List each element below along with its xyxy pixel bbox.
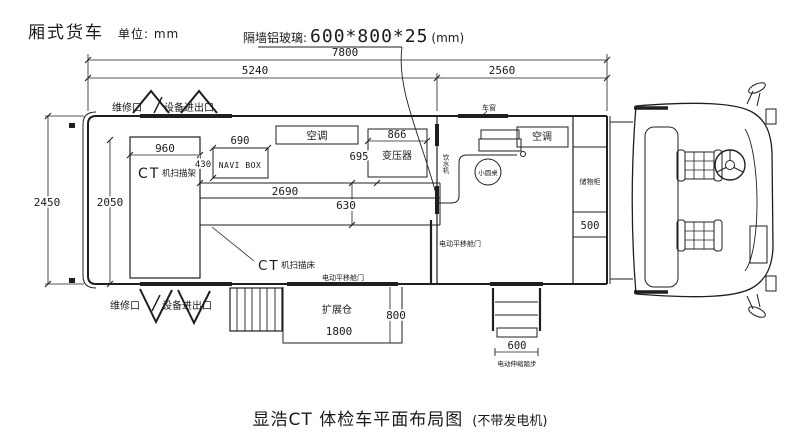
dim-cabin-length: 5240	[242, 64, 269, 77]
dim-cabinet-width: 500	[581, 220, 600, 232]
cab-front-box	[750, 226, 767, 263]
dim-expansion-depth: 800	[386, 309, 406, 322]
storage-column: 储物柜 500	[573, 116, 607, 284]
ac-right-label: 空调	[532, 130, 552, 143]
retractable-steps: 600 电动伸缩踏步	[493, 288, 540, 368]
service-port-label-bottom: 维修口	[110, 299, 140, 312]
truck-cab	[610, 81, 776, 320]
drawing-title-text: 显浩CT 体检车平面布局图	[253, 410, 464, 430]
service-openings-bottom: 维修口 设备进出口	[110, 289, 212, 323]
air-conditioner-left: 空调	[276, 126, 358, 144]
dim-expansion-length: 1800	[326, 325, 353, 338]
ct-gantry-ct: CT	[138, 166, 160, 182]
ct-bed-ct: CT	[258, 258, 280, 274]
left-dimensions: 2450 2050	[34, 113, 124, 287]
rear-hinge-bottom	[69, 278, 75, 283]
dim-total-length: 7800	[332, 46, 359, 59]
ct-gantry-label: 机扫描架	[162, 168, 197, 179]
mirror-bottom-icon	[747, 294, 767, 319]
passenger-seat-icon	[677, 220, 722, 251]
partition-wall: 电动平移舱门	[431, 116, 481, 284]
sliding-door-label-partition: 电动平移舱门	[439, 239, 481, 248]
sliding-door-label-bottom: 电动平移舱门	[322, 273, 364, 282]
water-dispenser-label: 饮水机	[441, 153, 449, 175]
headlight-top	[766, 109, 776, 124]
dim-interior-height: 2050	[97, 196, 124, 209]
retract-steps-label: 电动伸缩踏步	[498, 359, 538, 368]
service-openings-top: 维修口 设备进出口	[112, 91, 217, 114]
dim-front-length: 2560	[489, 64, 516, 77]
round-table-label: 小圆桌	[478, 168, 498, 177]
equipment-port-label-bottom: 设备进出口	[162, 299, 212, 312]
dim-steps-width: 600	[508, 340, 527, 352]
glass-note-leader	[258, 47, 436, 194]
navi-box-label: NAVI BOX	[219, 161, 262, 170]
window-label: 车窗	[482, 103, 496, 112]
equipment-port-label-top: 设备进出口	[164, 101, 214, 114]
console-desk-icon	[479, 130, 526, 157]
rear-hinge-top	[69, 123, 75, 128]
steering-wheel-icon	[715, 150, 745, 180]
ct-vehicle-floorplan: 厢式货车 单位: mm 隔墙铝玻璃: 600*800*25 (mm) 7800 …	[0, 0, 800, 444]
dim-navi-width: 690	[231, 135, 250, 147]
ct-bed-label: 机扫描床	[281, 260, 316, 271]
dim-body-height: 2450	[34, 196, 61, 209]
mirror-top-icon	[747, 81, 767, 106]
ct-gantry: 960 CT 机扫描架	[127, 137, 203, 278]
transformer-label: 变压器	[382, 149, 412, 162]
drawing-title-note: (不带发电机)	[472, 414, 547, 429]
navi-box: 690 430 NAVI BOX	[195, 135, 271, 181]
drawing-title: 显浩CT 体检车平面布局图 (不带发电机)	[0, 405, 800, 430]
dim-bed-length: 2690	[272, 185, 299, 198]
service-port-label-top: 维修口	[112, 101, 142, 114]
lounge-area: 车窗 小圆桌 饮水机 空调 储物柜 500	[437, 103, 607, 284]
air-conditioner-right: 空调	[517, 127, 568, 147]
floorplan-drawing: 7800 5240 2560 2450 2050	[0, 0, 800, 444]
windshield-line	[745, 129, 757, 271]
dim-bed-width: 630	[336, 199, 356, 212]
dim-gantry-width: 960	[155, 142, 175, 155]
top-dimensions: 7800 5240 2560	[85, 46, 610, 111]
ct-scan-bed: 2690 630 CT 机扫描床	[197, 180, 440, 274]
expansion-bay-label: 扩展仓	[322, 303, 352, 316]
dim-transformer-depth: 695	[350, 151, 369, 163]
ac-left-label: 空调	[307, 129, 328, 142]
headlight-bottom	[766, 276, 776, 291]
cab-bunk	[645, 127, 678, 287]
storage-cabinet-label: 储物柜	[580, 177, 601, 186]
dim-navi-depth: 430	[195, 160, 211, 170]
dim-transformer-width: 866	[388, 129, 407, 141]
equipment-ramp	[230, 288, 282, 331]
expansion-bay: 扩展仓 1800 800	[283, 287, 406, 343]
